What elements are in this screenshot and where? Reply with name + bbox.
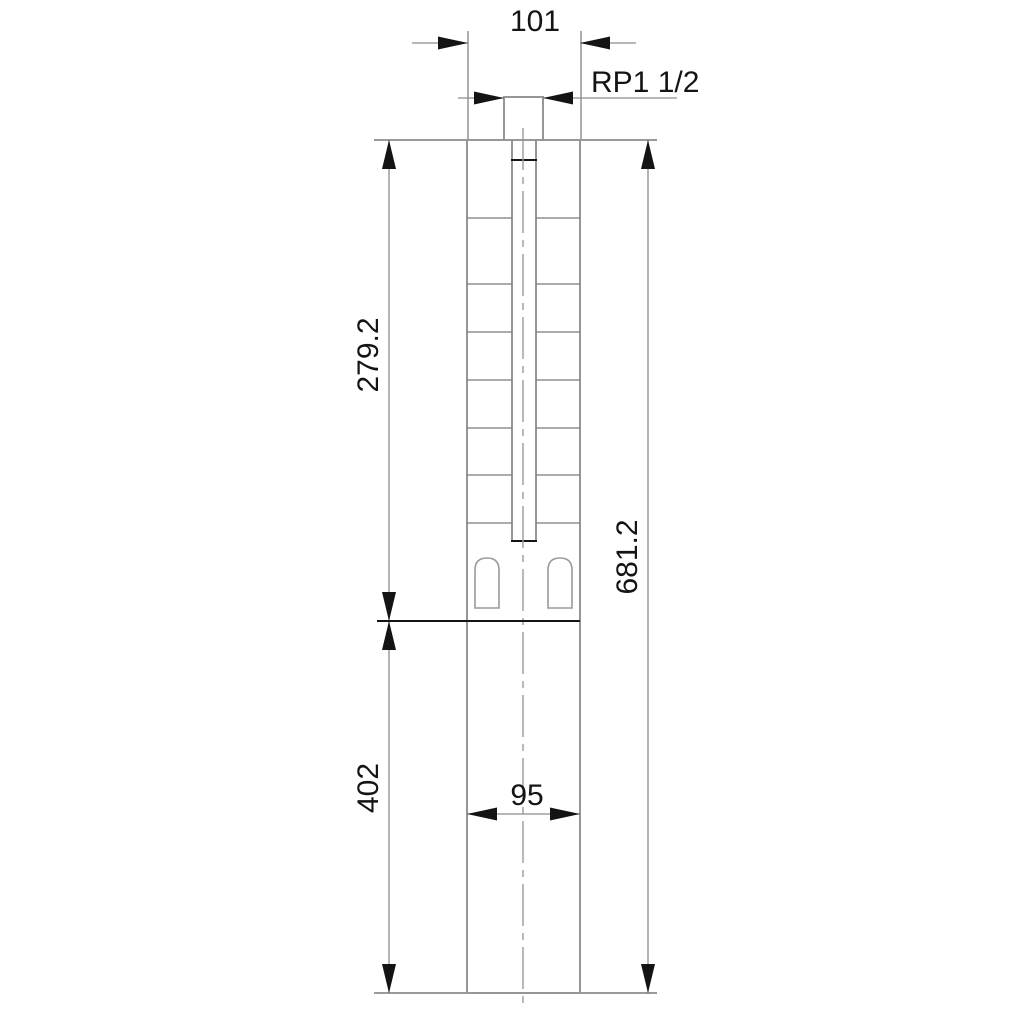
arrow-right-icon [474,92,504,105]
dim-motor-width: 95 [467,779,580,821]
dim-motor-width-label: 95 [510,779,543,812]
arrow-right-icon [438,37,468,50]
pump-dimension-drawing: 101 RP1 1/2 279.2 402 681.2 95 [0,0,1024,1024]
dim-motor-length-label: 402 [352,763,385,813]
arrow-right-icon [550,808,580,821]
extension-lines [374,31,657,993]
arrow-up-icon [641,140,655,169]
inlet-slot-left [475,558,499,608]
arrow-down-icon [641,964,655,993]
dim-top-width-label: 101 [510,5,560,38]
arrow-left-icon [543,92,573,105]
dim-top-width: 101 [412,5,636,50]
arrow-left-icon [580,37,610,50]
dim-thread: RP1 1/2 [458,66,699,105]
arrow-left-icon [467,808,497,821]
arrow-up-icon [382,621,396,650]
dim-total-length-label: 681.2 [611,519,644,594]
arrow-down-icon [382,964,396,993]
drawing-canvas: 101 RP1 1/2 279.2 402 681.2 95 [0,0,1024,1024]
arrow-down-icon [382,592,396,621]
dim-total-length: 681.2 [611,140,655,993]
thread-label: RP1 1/2 [591,66,699,99]
inlet-slot-right [548,558,572,608]
dim-pump-length-label: 279.2 [352,317,385,392]
pump-body [467,97,580,1004]
arrow-up-icon [382,140,396,169]
